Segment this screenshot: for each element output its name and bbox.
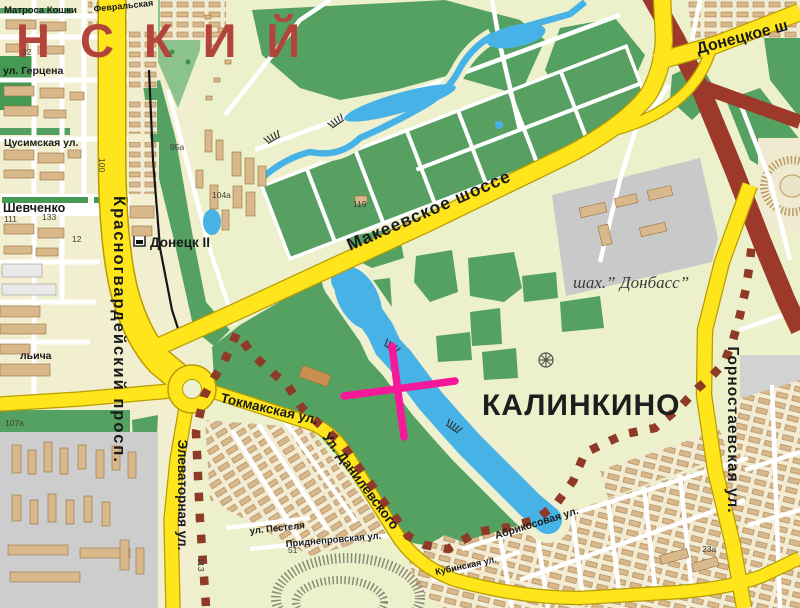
building-number: 111 <box>4 214 17 224</box>
building-number: 119 <box>353 199 367 209</box>
map-canvas[interactable]: НСКИЙ КАЛИНКИНО шах.” Донбасс” Донецк II… <box>0 0 800 608</box>
building-number: 32 <box>22 47 32 57</box>
road-label-gornostaevskaya: Горностаевская ул. <box>724 346 741 513</box>
district-name-label: НСКИЙ <box>16 14 330 67</box>
road-label-krasnogvardeysky: Красногвардейский просп. <box>110 196 128 464</box>
building-number: 51 <box>288 545 298 555</box>
street-label-tsusimskaya: Цусимская ул. <box>4 137 79 149</box>
street-label-ilyicha: льича <box>20 350 52 362</box>
mine-label: шах.” Донбасс” <box>573 273 689 292</box>
station-label: Донецк II <box>150 235 210 250</box>
building-number: 104а <box>212 190 231 200</box>
building-number: 23а <box>702 544 716 554</box>
building-number: 100 <box>97 158 107 172</box>
building-number: 95а <box>170 142 184 152</box>
mine-symbol-icon <box>539 353 553 367</box>
building-number: 133 <box>42 212 56 222</box>
road-label-elevatornaya: Элеваторная ул. <box>175 440 190 551</box>
building-number: 107а <box>5 418 24 428</box>
street-label-gertsena: ул. Герцена <box>3 65 64 77</box>
building-number: 113 <box>196 558 206 572</box>
settlement-label: КАЛИНКИНО <box>482 389 681 422</box>
street-label-matrosa-koshki: Матроса Кошки <box>4 5 77 16</box>
building-number: 12 <box>72 234 82 244</box>
